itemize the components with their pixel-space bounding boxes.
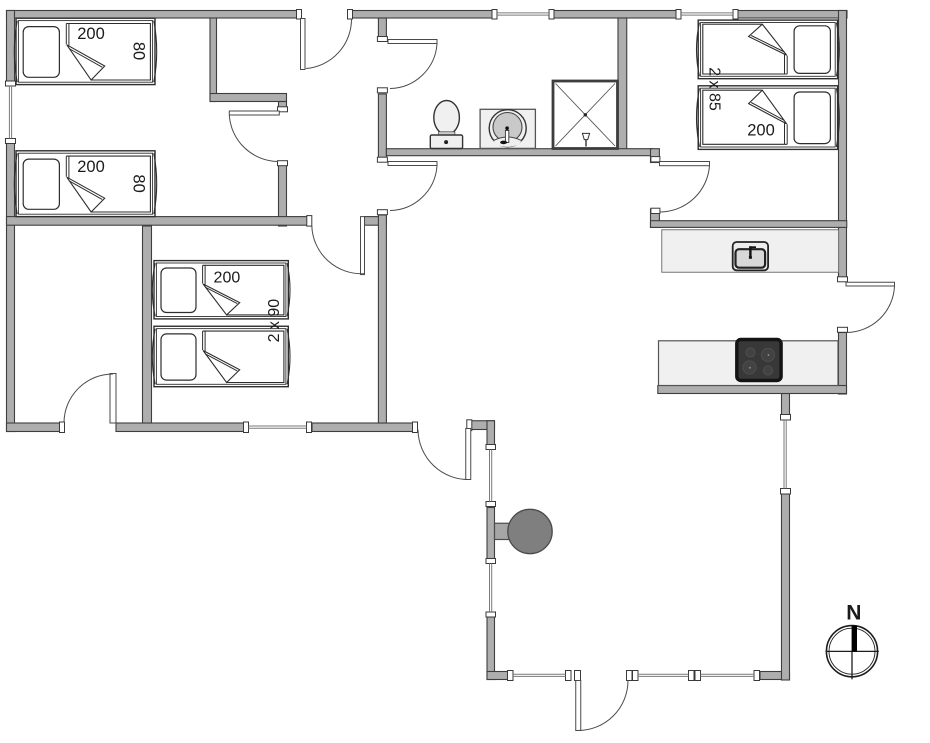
svg-text:N: N [846, 602, 861, 625]
svg-text:200: 200 [77, 25, 105, 43]
svg-text:2 x 90: 2 x 90 [266, 299, 283, 343]
svg-text:2 x 85: 2 x 85 [706, 67, 723, 111]
svg-text:80: 80 [130, 174, 148, 192]
svg-text:200: 200 [77, 158, 105, 176]
svg-text:80: 80 [130, 42, 148, 60]
svg-text:200: 200 [214, 269, 241, 286]
svg-text:200: 200 [747, 122, 775, 140]
